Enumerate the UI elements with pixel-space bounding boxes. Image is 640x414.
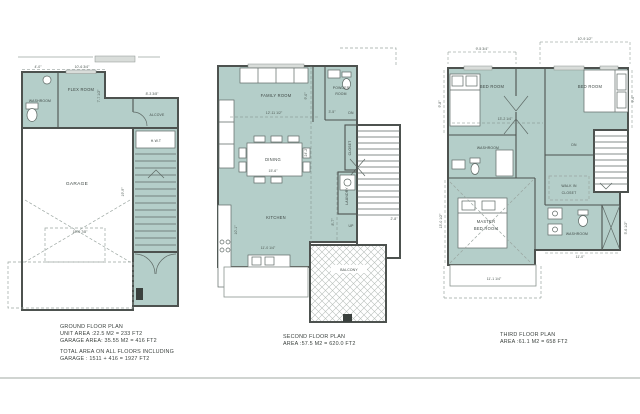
second-floor-caption: SECOND FLOOR PLAN AREA :57.5 M2 = 620.0 … [283, 334, 356, 347]
third-floor-caption: THIRD FLOOR PLAN AREA :61.1 M2 = 658 FT2 [500, 332, 568, 345]
second-floor-plan: FAMILY ROOM POWDER ROOM DINING CLOSET LA… [218, 48, 400, 347]
dim-garage-width: 18'-6 7/8" [73, 230, 89, 234]
lower-porch [450, 265, 536, 286]
window [600, 66, 618, 70]
washroom-lower-label: WASHROOM [566, 232, 588, 236]
dim-entry-width: 4'-0" [35, 65, 43, 69]
chair [271, 177, 282, 183]
washroom-upper-label: WASHROOM [477, 146, 499, 150]
sink-icon [548, 224, 562, 235]
dn-label: DN [571, 143, 577, 147]
flex-room-label: FLEX ROOM [68, 87, 95, 92]
sink-icon [43, 76, 51, 84]
chair [239, 148, 246, 158]
dim-flex-width: 10'-6 3/4" [75, 65, 91, 69]
bedroom-left-label: BED ROOM [480, 84, 505, 89]
lower-porch [224, 267, 308, 297]
ground-floor-title: GROUND FLOOR PLAN [60, 324, 123, 330]
walk-in-closet-label-2: CLOSET [562, 191, 577, 195]
roof-dimension-lines [448, 42, 630, 64]
dim-stair-run: 8'-7" [331, 218, 335, 226]
total-area-line2: GARAGE : 1511 + 416 = 1927 FT2 [60, 356, 150, 362]
bedroom-right-label: BED ROOM [578, 84, 603, 89]
dim-kitchen-width: 11'-0 1/4" [261, 246, 276, 250]
dim-total-height: 24'-2" [304, 147, 308, 157]
dim-family-width: 12'-11 1/2" [266, 111, 283, 115]
balcony-hatch [311, 246, 385, 321]
dim-garage-depth: 19'-9" [121, 187, 125, 197]
chair [254, 177, 265, 183]
dim-master-width: 11'-1 1/4" [487, 277, 502, 281]
dim-stair-width: 2'-8" [391, 217, 399, 221]
dim-roof-right: 10'-9 1/2" [578, 37, 594, 41]
wall-lintel [95, 56, 135, 62]
alcove-label: ALCOVE [150, 113, 165, 117]
total-area-line1: TOTAL AREA ON ALL FLOORS INCLUDING [60, 349, 174, 355]
hwt-label: H.W.T [151, 139, 161, 143]
chair [271, 136, 282, 142]
dim-hall-width: 3'-5" [329, 110, 337, 114]
toilet-icon [579, 216, 588, 227]
dim-upper-height: 9'-0" [304, 92, 308, 100]
post [136, 288, 143, 300]
post [343, 314, 352, 322]
chair [288, 136, 299, 142]
toilet-tank-icon [26, 103, 38, 109]
chair [254, 136, 265, 142]
dim-roof-left: 9'-5 3/4" [476, 47, 490, 51]
second-floor-area: AREA :57.5 M2 = 620.0 FT2 [283, 341, 356, 347]
pillow [452, 76, 463, 86]
chair [239, 162, 246, 172]
stairwell [594, 130, 628, 192]
dim-alcove-width: 8'-3 3/8" [146, 92, 160, 96]
pillow [466, 76, 477, 86]
dim-washroom-width: 11'-0" [576, 255, 585, 259]
dim-right-height: 9'-0" [631, 95, 635, 103]
sink-icon [252, 257, 261, 265]
dn-label: DN [348, 111, 354, 115]
toilet-icon [471, 164, 479, 175]
stairwell [357, 125, 400, 258]
dim-kitchen-height: 10'-1" [234, 225, 238, 235]
second-floor-title: SECOND FLOOR PLAN [283, 334, 345, 340]
sink-icon [328, 70, 340, 78]
sheet-footer-rule [0, 377, 640, 379]
floor-plan-drawing: 4'-0" 10'-6 3/4" 7'-7 1/2" 8'-3 3/8" 19'… [0, 0, 640, 414]
window [66, 70, 96, 74]
master-bedroom-label-1: MASTER [477, 219, 496, 224]
window [554, 66, 584, 70]
dim-bedrooms-width: 13'-2 1/4" [498, 117, 514, 121]
window [464, 66, 492, 70]
sink-icon [548, 208, 562, 219]
chair [303, 162, 310, 172]
toilet-tank-icon [342, 72, 351, 77]
window [248, 64, 304, 68]
floor-plan-sheet: 4'-0" 10'-6 3/4" 7'-7 1/2" 8'-3 3/8" 19'… [0, 0, 640, 414]
laundry-label: LAUNDRY [345, 187, 349, 205]
closet-label: CLOSET [348, 141, 352, 156]
pillow [617, 92, 626, 108]
up-label: UP [348, 224, 354, 228]
ground-floor-caption: GROUND FLOOR PLAN UNIT AREA :22.5 M2 = 2… [60, 324, 174, 362]
pillow [482, 201, 495, 210]
third-floor-title: THIRD FLOOR PLAN [500, 332, 555, 338]
walk-in-closet-label-1: WALK IN [561, 184, 577, 188]
ground-floor-plan: 4'-0" 10'-6 3/4" 7'-7 1/2" 8'-3 3/8" 19'… [8, 56, 178, 362]
dining-label: DINING [265, 157, 281, 162]
powder-room-label-2: ROOM [335, 92, 346, 96]
dim-left-height: 9'-8" [438, 100, 442, 108]
dim-master-height: 13'-0 1/2" [439, 213, 443, 229]
dim-washroom-height: 5'-6 1/2" [624, 221, 628, 235]
powder-room-label-1: POWDER [333, 86, 350, 90]
garage-outline [22, 128, 133, 310]
ground-floor-garage-area: GARAGE AREA: 35.55 M2 = 416 FT2 [60, 338, 157, 344]
roof-overhang-line [340, 48, 396, 66]
family-room-label: FAMILY ROOM [261, 93, 292, 98]
toilet-tank-icon [470, 158, 480, 163]
toilet-tank-icon [578, 210, 588, 215]
toilet-icon [27, 109, 37, 122]
sofa [240, 68, 308, 83]
third-floor-plan: BED ROOM BED ROOM WASHROOM WALK IN CLOSE… [438, 37, 635, 345]
garage-label: GARAGE [66, 181, 88, 187]
sink-icon [265, 257, 274, 265]
washroom-label: WASHROOM [29, 99, 51, 103]
pillow [617, 74, 626, 90]
kitchen-label: KITCHEN [266, 215, 286, 220]
dim-flex-height: 7'-7 1/2" [97, 89, 101, 103]
master-bedroom-label-2: BED ROOM [474, 226, 499, 231]
dim-dining-width: 15'-6" [269, 169, 279, 173]
balcony-label: BALCONY [340, 268, 358, 272]
third-floor-area: AREA :61.1 M2 = 658 FT2 [500, 339, 568, 345]
sink-icon [452, 160, 465, 169]
ground-floor-unit-area: UNIT AREA :22.5 M2 = 233 FT2 [60, 331, 142, 337]
bathtub-icon [496, 150, 513, 176]
sofa-left [219, 100, 234, 168]
